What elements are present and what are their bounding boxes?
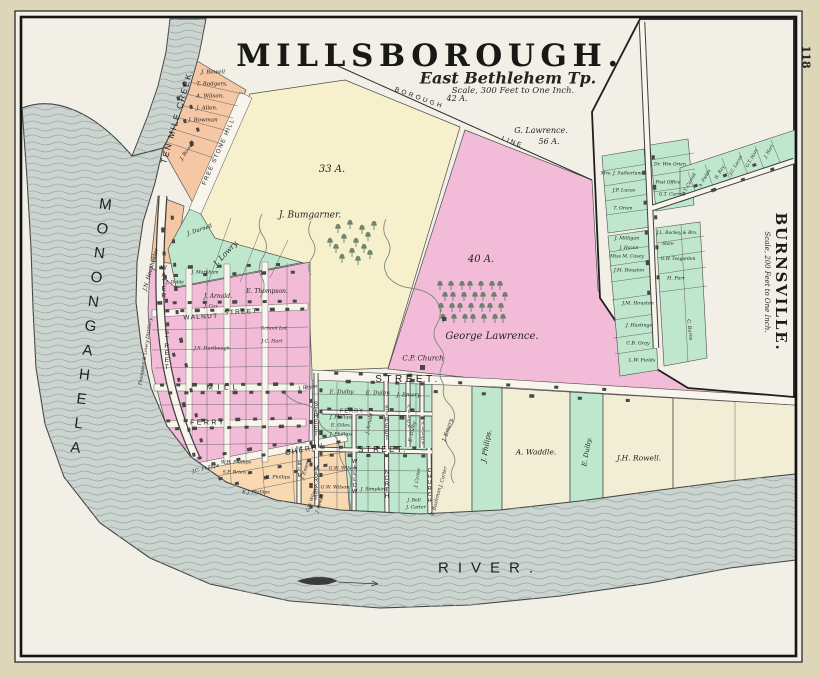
- map-canvas: [0, 0, 819, 678]
- burnsville-inset: [592, 19, 795, 397]
- farm-building: [442, 317, 447, 321]
- strip-1: [432, 383, 472, 516]
- strip-waddle: [502, 388, 570, 516]
- atlas-page: MILLSBOROUGH. East Bethlehem Tp. Scale, …: [0, 0, 819, 678]
- church-building: [420, 365, 425, 370]
- strip-dulby: [570, 392, 603, 514]
- strip-philips: [472, 386, 502, 516]
